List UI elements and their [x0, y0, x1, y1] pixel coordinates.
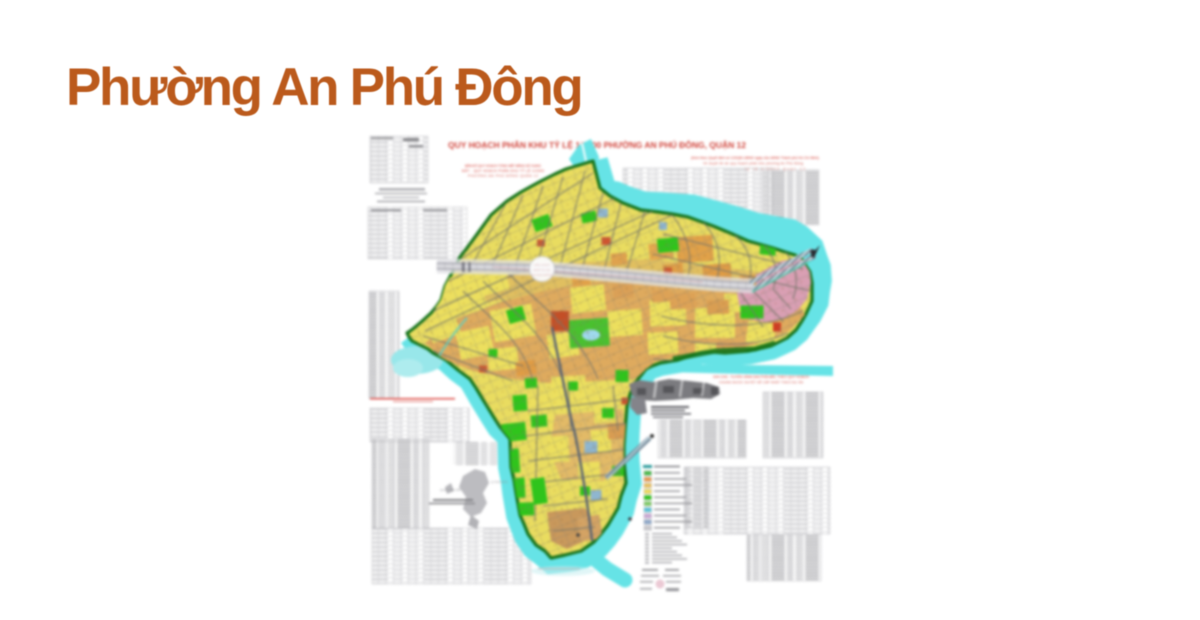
- svg-text:CẦU VƯỢT: CẦU VƯỢT: [534, 263, 550, 267]
- svg-text:Q.THỦ ĐỨC: Q.THỦ ĐỨC: [491, 479, 509, 484]
- svg-text:AN PHÚ ĐÔNG: AN PHÚ ĐÔNG: [531, 272, 553, 277]
- svg-text:QUẬN GÒ VẤP: QUẬN GÒ VẤP: [440, 487, 461, 492]
- svg-text:Về duyệt đồ án quy hoạch phân: Về duyệt đồ án quy hoạch phân khu phường…: [703, 162, 803, 166]
- svg-text:QUY HOẠCH PHÂN KHU TỶ LỆ 1/200: QUY HOẠCH PHÂN KHU TỶ LỆ 1/2000 PHƯỜNG A…: [448, 139, 746, 150]
- svg-text:(Kèm theo Quyết định số 123/QĐ: (Kèm theo Quyết định số 123/QĐ-UBND ngày…: [691, 156, 819, 160]
- svg-text:ĐẤT - QUY HOẠCH PHÂN KHU TỶ LỆ: ĐẤT - QUY HOẠCH PHÂN KHU TỶ LỆ 1/2000: [462, 168, 544, 173]
- svg-text:NGÃ TƯ GA: NGÃ TƯ GA: [534, 267, 551, 272]
- svg-text:BẢN ĐỒ QUY HOẠCH TỔNG MẶT BẰNG: BẢN ĐỒ QUY HOẠCH TỔNG MẶT BẰNG SỬ DỤNG: [465, 163, 541, 168]
- svg-text:CHUNG ĐƯỢC DUYỆT SẼ CẬP NHẬT T: CHUNG ĐƯỢC DUYỆT SẼ CẬP NHẬT THEO DỰ ÁN: [719, 380, 804, 385]
- svg-text:GHI CHÚ : TUYẾN VÀNH ĐAI PHÍA: GHI CHÚ : TUYẾN VÀNH ĐAI PHÍA BẮC THEO Q…: [713, 374, 809, 379]
- svg-text:PHƯỜNG AN PHÚ ĐÔNG QUẬN 12: PHƯỜNG AN PHÚ ĐÔNG QUẬN 12: [468, 173, 538, 178]
